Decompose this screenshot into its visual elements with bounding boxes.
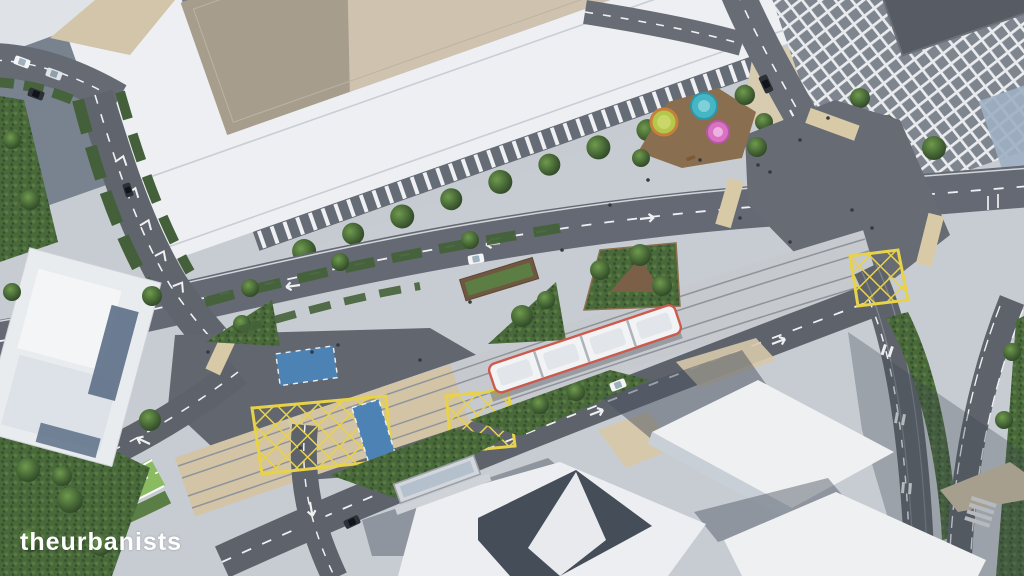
aerial-render-image: theurbanists bbox=[0, 0, 1024, 576]
render-scene bbox=[0, 0, 1024, 576]
watermark: theurbanists bbox=[20, 528, 182, 557]
